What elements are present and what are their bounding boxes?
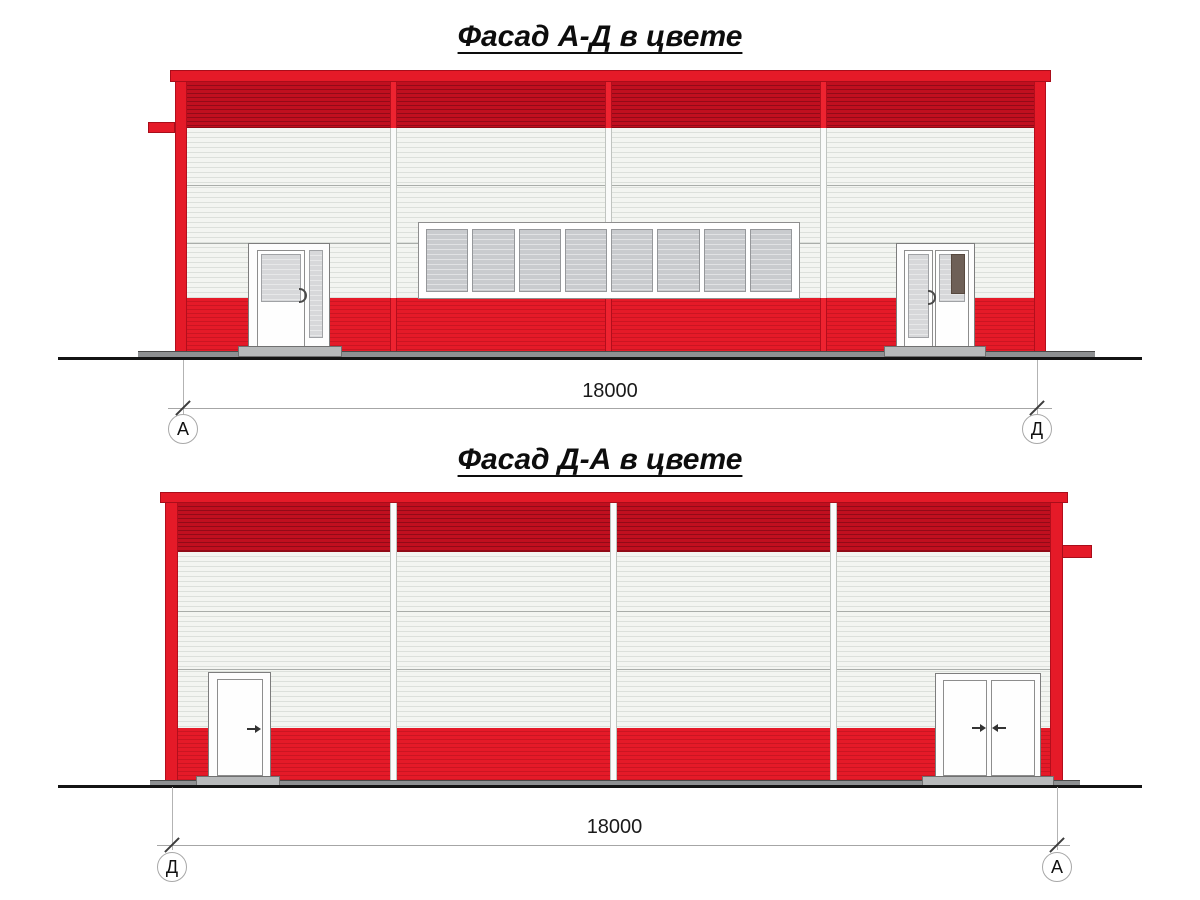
mullion	[820, 82, 827, 128]
mullion	[390, 503, 397, 781]
mullion	[390, 298, 397, 352]
mullion	[390, 82, 397, 128]
mullion	[820, 128, 827, 298]
dimension-line	[157, 845, 1070, 846]
door-threshold	[884, 346, 986, 357]
axis-marker-a: А	[168, 414, 198, 444]
dimension-label: 18000	[172, 816, 1057, 839]
corner-column	[1034, 82, 1046, 352]
door-handle-icon	[992, 724, 1006, 732]
door-glass	[261, 254, 301, 302]
axis-marker-a: А	[1042, 852, 1072, 882]
facade-ad-title: Фасад А-Д в цвете	[0, 20, 1200, 54]
drawing-sheet: Фасад А-Д в цвете	[0, 0, 1200, 900]
door-handle-icon	[299, 288, 307, 303]
roof-parapet-cap	[170, 70, 1051, 82]
mullion	[605, 82, 612, 128]
service-door-left	[208, 672, 271, 781]
mullion	[830, 503, 837, 781]
mullion	[390, 128, 397, 298]
dimension-label: 18000	[183, 380, 1037, 403]
axis-marker-d: Д	[157, 852, 187, 882]
door-threshold	[238, 346, 342, 357]
gutter-outlet	[1062, 545, 1092, 558]
window-pane	[611, 229, 653, 292]
window-pane	[750, 229, 792, 292]
service-door-right	[935, 673, 1041, 781]
door-leaf	[935, 250, 969, 347]
window-pane	[565, 229, 607, 292]
mullion	[820, 298, 827, 352]
entrance-door-right	[896, 243, 975, 352]
gutter-outlet	[148, 122, 175, 133]
corner-column	[175, 82, 187, 352]
door-leaf	[257, 250, 305, 347]
ground-line	[58, 357, 1142, 360]
door-glass	[908, 254, 929, 338]
ground-line	[58, 785, 1142, 788]
roof-parapet-cap	[160, 492, 1068, 503]
dimension-line	[168, 408, 1052, 409]
facade-ad-elevation	[175, 70, 1046, 352]
door-sidelight	[309, 250, 323, 338]
window-pane	[426, 229, 468, 292]
window-pane	[472, 229, 514, 292]
door-dark-panel	[951, 254, 965, 294]
axis-marker-d: Д	[1022, 414, 1052, 444]
facade-da-elevation	[165, 492, 1063, 781]
window-pane	[519, 229, 561, 292]
door-handle-icon	[972, 724, 986, 732]
entrance-door-left	[248, 243, 330, 352]
facade-da-title: Фасад Д-А в цвете	[0, 443, 1200, 477]
window-pane	[704, 229, 746, 292]
mullion	[610, 503, 617, 781]
extension-line	[1057, 787, 1058, 850]
window-pane	[657, 229, 699, 292]
mullion	[605, 298, 612, 352]
corner-column	[165, 503, 178, 781]
door-handle-icon	[247, 725, 261, 733]
ribbon-window	[418, 222, 800, 299]
